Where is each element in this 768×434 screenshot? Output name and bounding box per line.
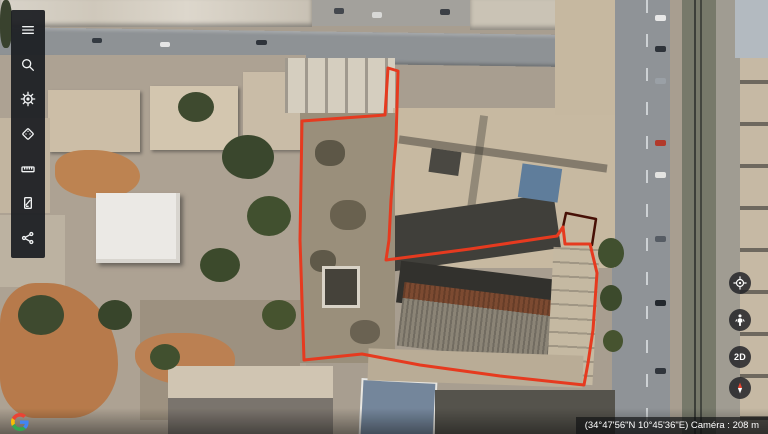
tree-cluster	[150, 344, 180, 370]
map-style-icon	[20, 195, 36, 211]
building-roof-blue	[518, 163, 562, 202]
my-location-button[interactable]	[729, 272, 751, 294]
car	[655, 140, 666, 146]
tree-cluster	[598, 238, 624, 268]
measure-button[interactable]	[16, 157, 40, 181]
google-g-icon	[11, 413, 29, 431]
feeling-lucky-button[interactable]	[16, 122, 40, 146]
building-row	[740, 0, 768, 434]
tree-cluster	[18, 295, 64, 335]
voyager-ship-wheel-icon	[20, 91, 36, 107]
camera-coordinates-text: (34°47'56"N 10°45'36"E) Caméra : 208 m	[585, 420, 759, 431]
bush	[350, 320, 380, 344]
voyager-button[interactable]	[16, 87, 40, 111]
car	[440, 9, 450, 15]
building-roof-white	[96, 193, 180, 263]
google-earth-window: 2D (34°47'56"N 10°45'36"E) Caméra : 208 …	[0, 0, 768, 434]
status-bar: (34°47'56"N 10°45'36"E) Caméra : 208 m	[576, 417, 768, 434]
car	[160, 42, 170, 47]
2d-label: 2D	[734, 352, 746, 362]
google-logo	[11, 413, 29, 431]
ruin-foundation	[322, 266, 360, 308]
tree-cluster	[98, 300, 132, 330]
pegman-icon	[733, 313, 747, 327]
satellite-imagery[interactable]	[0, 0, 768, 434]
car	[655, 172, 666, 178]
railway-median	[682, 0, 716, 434]
building-roof-blue	[359, 378, 438, 434]
search-button[interactable]	[16, 53, 40, 77]
compass-icon	[733, 381, 747, 395]
car	[655, 46, 666, 52]
building-row	[0, 0, 312, 27]
car	[655, 15, 666, 21]
car	[655, 78, 666, 84]
roadside-ground	[716, 0, 742, 434]
tree-cluster	[222, 135, 274, 179]
tree-cluster	[247, 196, 291, 236]
tree-cluster	[262, 300, 296, 330]
map-style-button[interactable]	[16, 191, 40, 215]
car	[334, 8, 344, 14]
share-button[interactable]	[16, 226, 40, 250]
building-block	[735, 0, 768, 58]
tree-cluster	[178, 92, 214, 122]
tree-cluster	[200, 248, 240, 282]
car	[655, 300, 666, 306]
bush	[315, 140, 345, 166]
bush	[330, 200, 366, 230]
feeling-lucky-dice-icon	[20, 126, 36, 142]
building-roof	[555, 0, 615, 115]
rail-track	[694, 0, 696, 434]
road-center-line	[646, 0, 648, 434]
building-row	[285, 58, 395, 113]
car	[256, 40, 267, 45]
building-roof	[48, 90, 140, 152]
pegman-button[interactable]	[729, 309, 751, 331]
share-icon	[20, 230, 36, 246]
menu-icon	[20, 22, 36, 38]
my-location-icon	[733, 276, 747, 290]
car	[92, 38, 102, 43]
measure-ruler-icon	[20, 161, 36, 177]
2d-toggle-button[interactable]: 2D	[729, 346, 751, 368]
compass-button[interactable]	[729, 377, 751, 399]
car	[372, 12, 382, 18]
building-shadow	[168, 398, 333, 434]
tree-cluster	[600, 285, 622, 311]
tree-cluster	[603, 330, 623, 352]
car	[655, 236, 666, 242]
car	[655, 368, 666, 374]
main-toolbar	[11, 10, 45, 258]
menu-button[interactable]	[16, 18, 40, 42]
rail-track	[700, 0, 702, 434]
search-icon	[20, 57, 36, 73]
courtyard-shadow	[428, 148, 461, 176]
